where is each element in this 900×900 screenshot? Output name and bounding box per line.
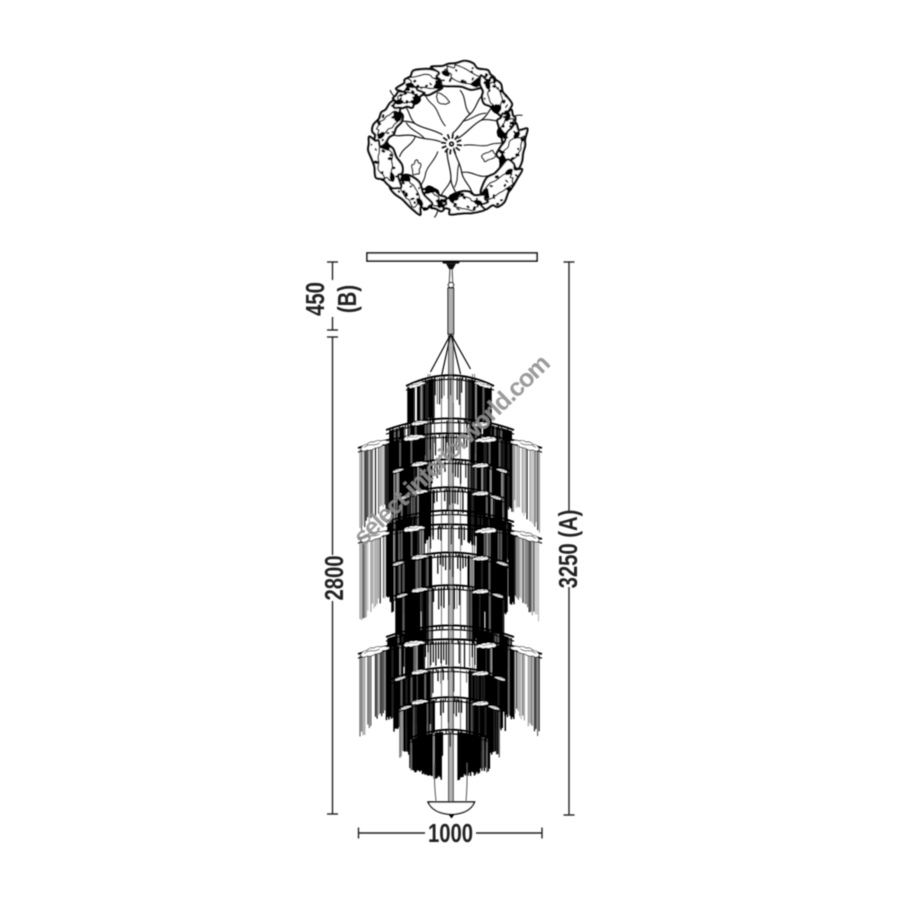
svg-text:(B): (B) [333,285,362,313]
svg-text:450: 450 [301,282,330,316]
svg-text:1000: 1000 [428,819,473,848]
svg-text:2800: 2800 [320,555,349,600]
svg-text:3250 (A): 3250 (A) [554,510,583,589]
